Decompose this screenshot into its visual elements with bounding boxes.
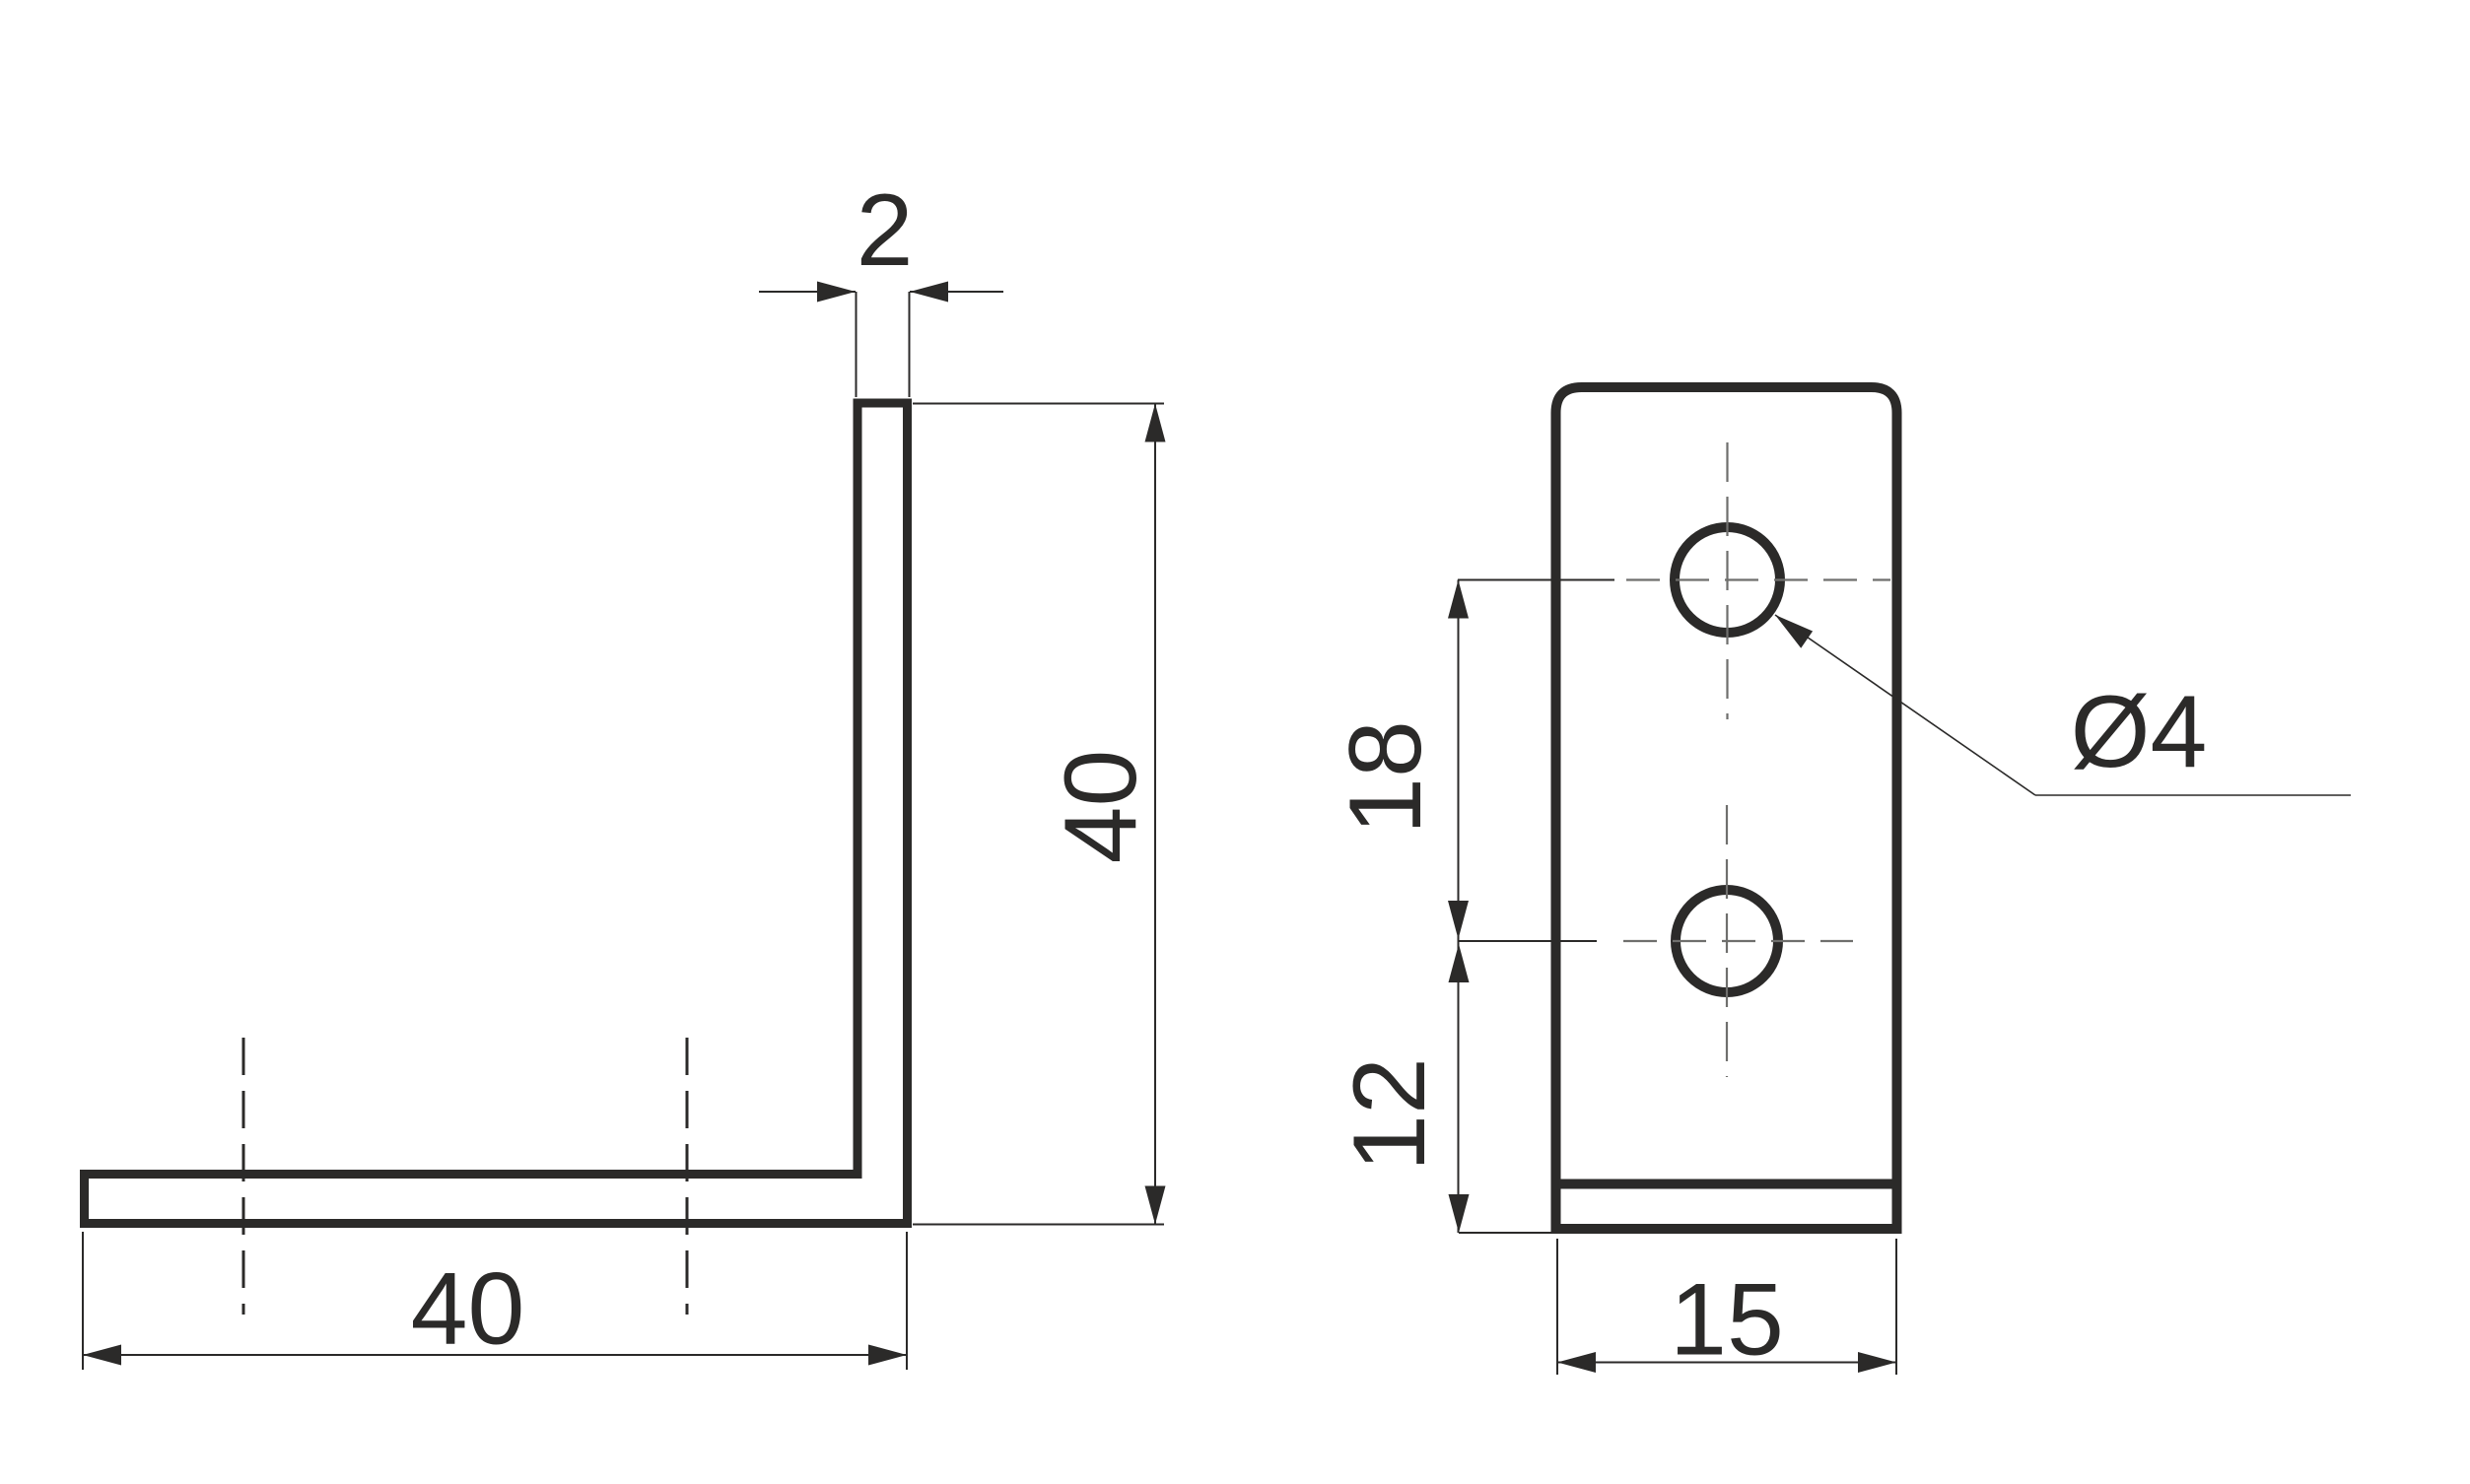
- svg-text:40: 40: [1044, 750, 1158, 864]
- svg-text:12: 12: [1333, 1057, 1447, 1172]
- svg-text:15: 15: [1670, 1263, 1784, 1378]
- svg-text:18: 18: [1329, 720, 1443, 835]
- svg-text:2: 2: [857, 173, 914, 288]
- svg-text:Ø4: Ø4: [2071, 675, 2208, 789]
- svg-text:40: 40: [411, 1252, 525, 1367]
